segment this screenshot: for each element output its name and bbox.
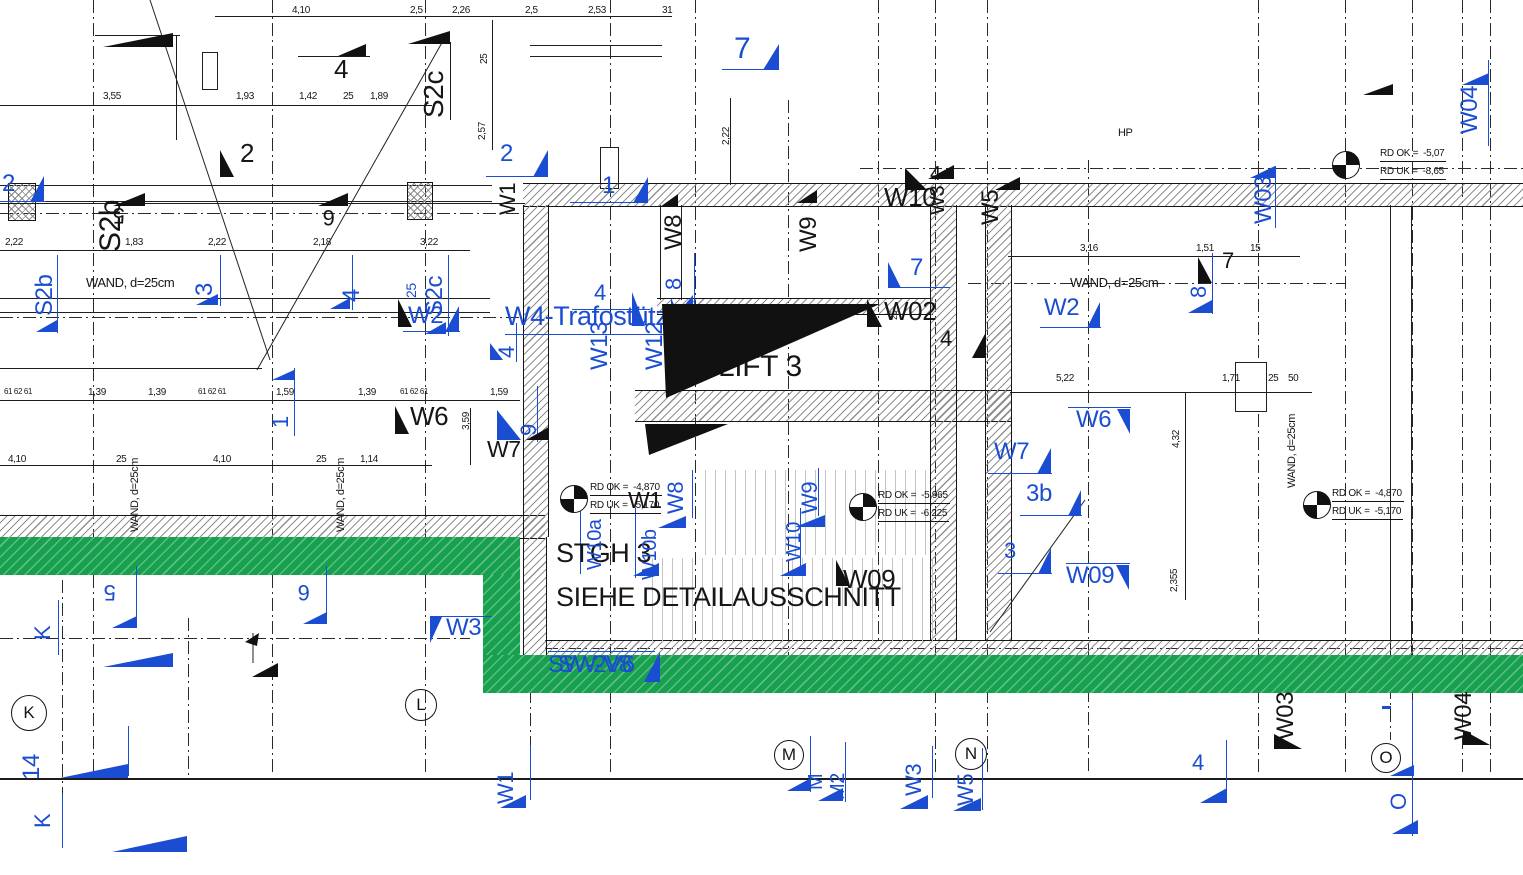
flag-line-v — [1412, 700, 1413, 836]
wand-note: WAND, d=25cm — [336, 458, 347, 532]
flag-line-v — [294, 368, 295, 436]
gridline-v — [1412, 0, 1413, 700]
survey-point-symbol — [849, 493, 877, 521]
dim: 2,26 — [452, 6, 470, 16]
dim: 1,42 — [299, 92, 317, 102]
flag-label: M — [806, 774, 826, 790]
gridline-h — [0, 317, 522, 318]
wall-hatched — [523, 183, 1523, 207]
flag-line-v — [62, 794, 63, 848]
label-w9: W9 — [797, 217, 821, 252]
dim-line — [1008, 256, 1300, 257]
flag-line-v — [692, 470, 693, 518]
survey-point-symbol — [560, 485, 588, 513]
dim: 3,59 — [462, 412, 472, 430]
dim: 3,16 — [1080, 244, 1098, 254]
survey-ok-value: RD OK = -4,870 — [1332, 488, 1404, 502]
dim: 1,39 — [88, 388, 106, 398]
flag-number: 3 — [193, 283, 217, 296]
dim-line-v — [492, 20, 493, 150]
flag-number: 5 — [104, 581, 116, 603]
flag-label: W3 — [446, 616, 481, 640]
wall-double-line — [530, 45, 662, 57]
dim: 1,59 — [276, 388, 294, 398]
dim: 25 — [480, 54, 490, 64]
cad-canvas[interactable]: 4,102,52,262,52,53313,551,931,42251,8925… — [0, 0, 1523, 875]
label-w8: W8 — [662, 215, 686, 250]
flag-line-v — [1212, 253, 1213, 314]
flag-label: W3 — [903, 764, 925, 796]
dim-line — [0, 105, 432, 106]
flag-label: K — [32, 626, 54, 640]
pos-number: 7 — [1222, 250, 1234, 272]
column-hatched — [407, 182, 433, 220]
wand-note: WAND, d=25cm — [130, 458, 141, 532]
wand-note: WAND, d=25cm — [1070, 276, 1158, 289]
dim-line — [1010, 392, 1312, 393]
gridline-h — [0, 213, 525, 214]
flag-line-v — [136, 566, 137, 618]
flag-number: 7 — [734, 34, 750, 64]
dim: 61 62 61 — [4, 388, 32, 396]
wall-hatched — [0, 515, 545, 539]
wall-double-line — [1390, 205, 1412, 655]
flag-label: W5 — [955, 774, 977, 806]
green-band — [483, 655, 1523, 693]
dim: 1,39 — [148, 388, 166, 398]
flag-line-v — [932, 746, 933, 798]
flag-number: 4 — [1192, 752, 1204, 774]
flag-line — [486, 176, 548, 177]
dim: 1,59 — [490, 388, 508, 398]
dim-line-v — [1185, 392, 1186, 600]
grid-bubble-m: M — [774, 740, 804, 770]
grid-bubble-n: N — [955, 738, 987, 770]
survey-ok-value: RD OK = -4,870 — [590, 482, 662, 496]
flag-label: W10a — [585, 519, 605, 570]
wall-hatched — [523, 537, 547, 655]
survey-uk-value: RD UK = -8,65 — [1380, 166, 1446, 180]
flag-number: 7 — [910, 256, 923, 280]
column — [1235, 362, 1267, 412]
dim: 2,5 — [410, 6, 423, 16]
flag-line — [403, 331, 460, 332]
flag-number: 9 — [518, 424, 540, 436]
dim: 2,22 — [722, 127, 732, 145]
wand-note: WAND, d=25cm — [1287, 414, 1298, 488]
flag-number: 1 — [270, 416, 292, 428]
label-w6: W6 — [410, 403, 448, 429]
survey-uk-value: RD UK = -5,170 — [1332, 506, 1403, 520]
dim: 1,71 — [1222, 374, 1240, 384]
dim: 1,83 — [125, 238, 143, 248]
dim: 3,22 — [420, 238, 438, 248]
dim: 2,22 — [5, 238, 23, 248]
flag-number: 2 — [500, 142, 513, 166]
label-w7: W7 — [487, 438, 521, 461]
label-w3: W3 — [928, 186, 948, 215]
flag-label: W09 — [1066, 564, 1114, 588]
dim: 1,51 — [1196, 244, 1214, 254]
dim: 2,5 — [525, 6, 538, 16]
flag-line — [988, 473, 1052, 474]
column — [202, 52, 218, 90]
dim-line — [215, 16, 672, 17]
flag-label: W12 — [643, 322, 667, 370]
dim: 1,39 — [358, 388, 376, 398]
gridline-v — [272, 0, 273, 775]
flag-line-v — [1226, 740, 1227, 790]
flag-label: W6 — [1076, 408, 1111, 432]
flag-number: 14 — [20, 754, 44, 780]
hp-label: HP — [1118, 128, 1132, 139]
flag-line — [998, 573, 1052, 574]
dim: 2,53 — [588, 6, 606, 16]
dim: 25 — [316, 455, 326, 465]
flag-label: M2 — [828, 773, 848, 800]
dim: 4,10 — [292, 6, 310, 16]
flag-line-v — [58, 600, 59, 655]
wall-hatched — [930, 205, 957, 640]
flag-line-v — [450, 42, 451, 120]
flag-line-v — [694, 253, 695, 308]
dim: 4,10 — [213, 455, 231, 465]
flag-line — [570, 202, 648, 203]
dim: 50 — [1288, 374, 1298, 384]
dim: 61 62 61 — [400, 388, 428, 396]
flag-number: 4 — [594, 282, 606, 304]
flag-label: W2 — [408, 304, 443, 328]
flag-number: 4 — [496, 346, 518, 358]
wall-hatched — [985, 205, 1012, 640]
pos-number: 4 — [930, 164, 941, 184]
green-band — [0, 537, 520, 575]
pos-number: 6 — [323, 206, 335, 228]
gridline-h — [0, 638, 470, 639]
wall-hatched — [523, 205, 549, 537]
flag-label: K — [32, 814, 54, 828]
dim: 25 — [1268, 374, 1278, 384]
dim: 1,93 — [236, 92, 254, 102]
label-w03: W03 — [1274, 692, 1298, 740]
line — [0, 203, 525, 204]
flag-label: W8 — [665, 482, 687, 514]
flag-number: 1 — [602, 174, 615, 198]
gridline-v — [188, 618, 189, 775]
label-w5: W5 — [979, 190, 1003, 225]
label-s2c: S2c — [420, 71, 448, 118]
sw-label-overlap: SW-V8 — [558, 653, 632, 677]
flag-label: 3b — [1026, 482, 1052, 506]
flag-line — [0, 201, 46, 202]
flag-line-v — [1488, 60, 1489, 146]
flag-label: W04 — [1458, 86, 1482, 134]
grid-bubble-k: K — [11, 695, 47, 731]
flag-label: W03 — [1252, 176, 1276, 224]
flag-line — [1040, 327, 1101, 328]
grid-bubble-o: O — [1371, 743, 1401, 773]
survey-point-symbol — [1303, 491, 1331, 519]
dim: 15 — [1250, 244, 1260, 254]
dim-line — [0, 465, 432, 466]
label-w02: W02 — [884, 298, 936, 324]
flag-line — [722, 69, 779, 70]
dim: 25 — [343, 92, 353, 102]
flag-line-v — [176, 36, 177, 140]
flag-number: 6 — [298, 581, 310, 603]
dim-line — [0, 250, 470, 251]
label-w04: W04 — [1452, 692, 1476, 740]
pos-number: 5 — [113, 204, 125, 226]
pos-number: 4 — [940, 328, 952, 350]
flag-label: W10 — [784, 522, 804, 562]
dim: 2,355 — [1170, 569, 1180, 592]
wand-note: WAND, d=25cm — [86, 276, 174, 289]
flag-label: W2 — [1044, 296, 1079, 320]
section-line — [0, 778, 1523, 780]
flag-number: 3 — [1004, 540, 1016, 562]
flag-line — [95, 35, 180, 36]
flag-line — [1020, 515, 1082, 516]
survey-ok-value: RD OK = -5,07 — [1380, 148, 1446, 162]
line — [0, 368, 262, 369]
dim: 2,22 — [208, 238, 226, 248]
dim: 61 62 61 — [198, 388, 226, 396]
flag-label: S2b — [33, 274, 57, 316]
dim: 3,55 — [103, 92, 121, 102]
grid-bubble-l: L — [405, 689, 437, 721]
flag-number: 4 — [340, 289, 364, 302]
lift-label: LIFT 3 — [718, 352, 802, 382]
survey-uk-value: RD UK = -5,170 — [590, 500, 661, 514]
dim: 2,57 — [478, 122, 488, 140]
flag-number: 25 — [404, 283, 418, 298]
flag-line — [888, 287, 950, 288]
flag-line-v — [220, 255, 221, 306]
flag-label: W1 — [495, 772, 517, 804]
label-w09: W09 — [843, 566, 895, 592]
dim: 4,32 — [1172, 430, 1182, 448]
flag-line-v — [326, 566, 327, 614]
flag-number: 8 — [663, 278, 685, 290]
gridline-v — [62, 580, 63, 795]
flag-line-v — [448, 255, 449, 336]
dim: 4,10 — [8, 455, 26, 465]
dim: 5,22 — [1056, 374, 1074, 384]
pos-number: 4 — [334, 56, 348, 82]
dim: 31 — [662, 6, 672, 16]
label-w1: W1 — [497, 183, 519, 215]
dim: 1,89 — [370, 92, 388, 102]
dim: 2,18 — [313, 238, 331, 248]
flag-label: W13 — [588, 322, 612, 370]
tick — [1382, 706, 1391, 709]
flag-label: W7 — [994, 440, 1029, 464]
dim: 1,14 — [360, 455, 378, 465]
flag-line-v — [128, 726, 129, 776]
survey-ok-value: RD OK = -5,965 — [878, 490, 950, 504]
pos-number: 2 — [240, 140, 254, 166]
flag-label: W10b — [640, 529, 660, 580]
flag-label: W9 — [799, 482, 821, 514]
flag-line-v — [530, 745, 531, 800]
flag-label: O — [1388, 793, 1410, 810]
flag-number: 8 — [1188, 286, 1210, 298]
flag-number: 2 — [2, 172, 15, 196]
survey-point-symbol — [1332, 151, 1360, 179]
dim: 25 — [116, 455, 126, 465]
survey-uk-value: RD UK = -6,225 — [878, 508, 949, 522]
